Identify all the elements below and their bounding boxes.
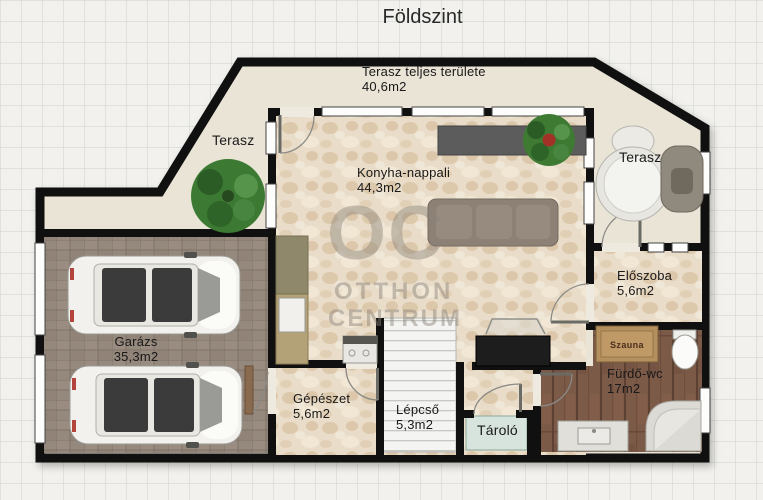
label-sauna: Szauna <box>596 338 658 353</box>
label-hall: Előszoba 5,6m2 <box>617 268 672 298</box>
plant-kitchen <box>523 114 575 166</box>
label-terrace-right: Terasz <box>619 150 661 165</box>
sofa <box>428 199 558 246</box>
label-terrace-total: Terasz teljes területe 40,6m2 <box>362 64 486 94</box>
watermark-line1: OTTHON <box>334 280 453 304</box>
label-bathroom: Fürdő-wc 17m2 <box>607 366 663 396</box>
car-1 <box>68 252 240 338</box>
label-mechanical: Gépészet 5,6m2 <box>293 391 350 421</box>
corner-bathtub <box>646 401 701 451</box>
floor-plan-page: Földszint <box>0 0 763 500</box>
label-storage: Tároló <box>477 423 518 438</box>
lounge-chair <box>661 146 703 212</box>
watermark-line2: CENTRUM <box>328 307 462 331</box>
desk <box>476 336 550 366</box>
label-terrace-left: Terasz <box>212 133 254 148</box>
label-garage: Garázs 35,3m2 <box>107 334 165 364</box>
kitchen-counter <box>276 236 308 364</box>
watermark-logo: OC <box>327 196 445 272</box>
page-title: Földszint <box>330 6 515 29</box>
stove <box>343 336 377 363</box>
label-stairs: Lépcső 5,3m2 <box>396 402 439 432</box>
sink-vanity <box>558 421 628 451</box>
label-kitchen-living: Konyha-nappali 44,3m2 <box>357 165 450 195</box>
car-2 <box>70 362 242 448</box>
toilet <box>672 330 698 369</box>
plant-left-terrace <box>191 159 265 233</box>
office-chair <box>486 319 545 334</box>
